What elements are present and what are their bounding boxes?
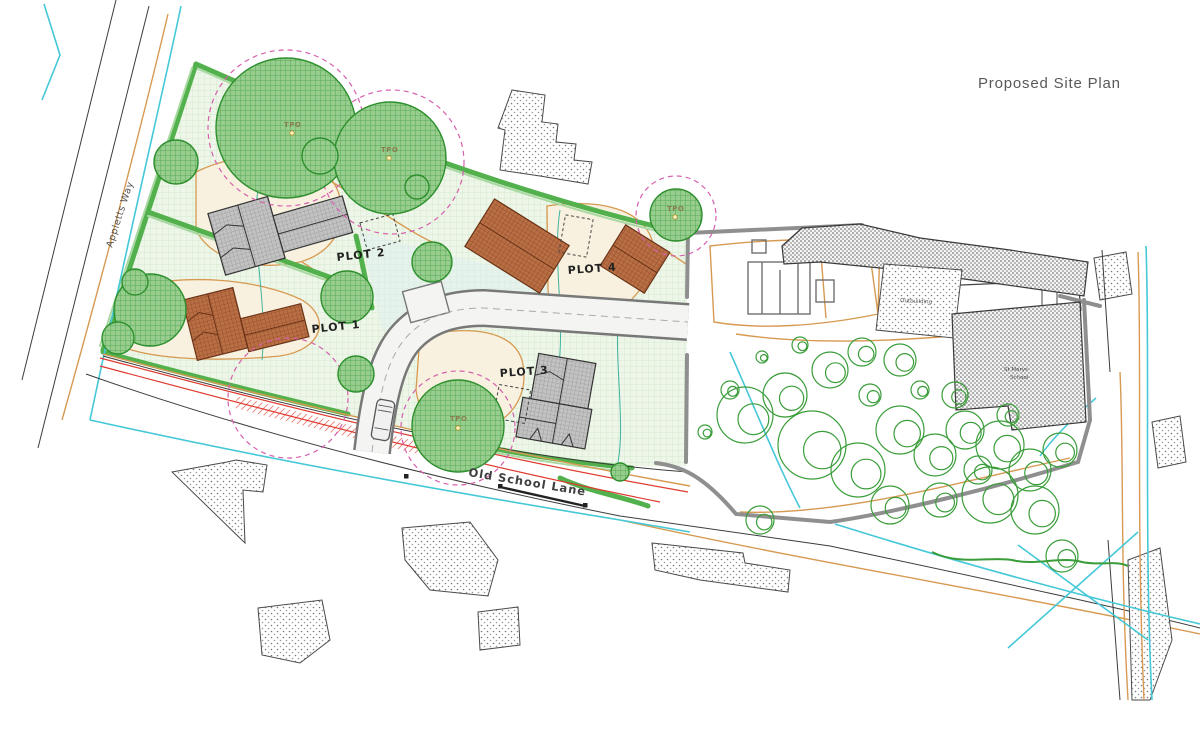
- tree-canopy: [102, 322, 134, 354]
- water-line: [42, 4, 60, 100]
- garden-tree-canopy: [884, 344, 916, 376]
- garden-tree-canopy: [960, 422, 981, 443]
- garden-tree-canopy: [930, 447, 953, 470]
- st-marys-school-building: [952, 302, 1086, 430]
- garden-tree-canopy: [851, 459, 881, 489]
- garden-tree-canopy: [792, 337, 808, 353]
- tpo-marker: [387, 156, 391, 160]
- garden-tree-canopy: [894, 420, 920, 446]
- appletts-way-label: Appletts Way: [104, 180, 136, 249]
- building-bottom-2: [258, 600, 330, 663]
- survey-marker: [404, 474, 409, 479]
- tpo-marker: [456, 426, 460, 430]
- garden-tree-canopy: [1011, 486, 1059, 534]
- garden-tree-canopy: [778, 411, 846, 479]
- garden-tree-canopy: [1058, 550, 1076, 568]
- garden-tree-canopy: [867, 391, 879, 403]
- page-title: Proposed Site Plan: [978, 75, 1121, 92]
- survey-marker: [583, 503, 588, 508]
- garden-tree-canopy: [876, 406, 924, 454]
- tree-canopy: [154, 140, 198, 184]
- garden-tree-canopy: [896, 354, 914, 372]
- garden-tree-canopy: [831, 443, 885, 497]
- garden-tree-canopy: [798, 342, 807, 351]
- garden-tree-canopy: [983, 484, 1014, 515]
- site-plan-canvas: Proposed Site Plan PLOT 1 PLOT 2 PLOT 3 …: [0, 0, 1200, 733]
- garden-tree-canopy: [721, 381, 739, 399]
- garden-tree-canopy: [1046, 540, 1078, 572]
- garden-tree-canopy: [826, 363, 846, 383]
- garden-tree-canopy: [780, 386, 804, 410]
- garden-tree-canopy: [962, 467, 1018, 523]
- st-marys-label-line2: School: [1010, 375, 1029, 381]
- site-plan-drawing: Proposed Site Plan PLOT 1 PLOT 2 PLOT 3 …: [0, 0, 1200, 733]
- garden-tree-canopy: [804, 431, 841, 468]
- garden-tree-canopy: [812, 352, 848, 388]
- tree-canopy: [122, 269, 148, 295]
- garden-tree-canopy: [994, 435, 1020, 461]
- garden-tree-canopy: [848, 338, 876, 366]
- garden-tree-canopy: [746, 506, 774, 534]
- garden-tree-canopy: [871, 486, 909, 524]
- tree-canopy: [405, 175, 429, 199]
- tpo-label: TPO: [284, 121, 301, 129]
- garden-tree-canopy: [1043, 433, 1077, 467]
- garden-tree-canopy: [946, 411, 984, 449]
- garden-tree-canopy: [738, 404, 769, 435]
- garden-tree-canopy: [763, 373, 807, 417]
- building-right-edge-2: [1152, 416, 1186, 468]
- tree-canopy: [321, 271, 373, 323]
- building-right-edge-3: [1128, 548, 1172, 700]
- building-bottom-left: [172, 460, 267, 543]
- tree-canopy: [302, 138, 338, 174]
- tpo-label: TPO: [667, 205, 684, 213]
- tree-canopy: [412, 242, 452, 282]
- tree-canopy: [611, 463, 629, 481]
- garden-tree-canopy: [859, 384, 881, 406]
- building-bottom-3: [478, 607, 520, 650]
- garden-tree-canopy: [976, 421, 1024, 469]
- garden-tree-canopy: [1029, 500, 1055, 526]
- building-bottom-1: [402, 522, 498, 596]
- building-top-middle: [498, 90, 592, 184]
- tpo-label: TPO: [381, 146, 398, 154]
- st-marys-label-line1: St Marys: [1004, 367, 1028, 373]
- tpo-marker: [673, 215, 677, 219]
- garden-tree-canopy: [717, 387, 773, 443]
- garden-tree-canopy: [859, 346, 874, 361]
- garden-tree-canopy: [911, 381, 929, 399]
- garden-tree-canopy: [936, 493, 955, 512]
- tpo-label: TPO: [450, 415, 467, 423]
- tpo-marker: [290, 131, 294, 135]
- garden-tree-canopy: [761, 355, 768, 362]
- building-right-edge-1: [1094, 252, 1132, 300]
- garden-tree-canopy: [703, 429, 711, 437]
- tree-canopy: [338, 356, 374, 392]
- garden-tree-canopy: [918, 386, 928, 396]
